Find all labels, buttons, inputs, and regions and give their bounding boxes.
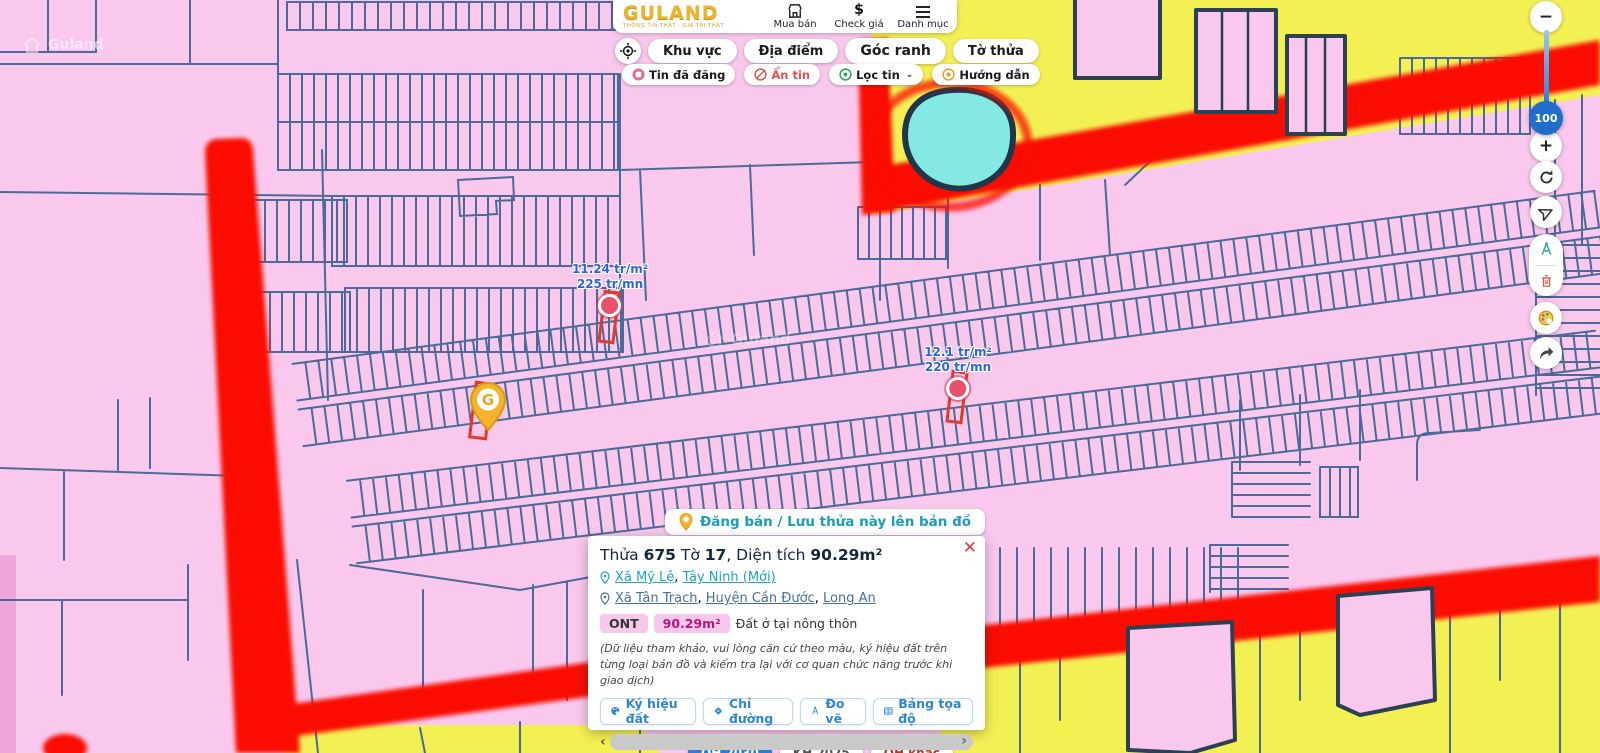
header-bar: GULAND THÔNG TIN THẬT - GIÁ TRỊ THẬT Mua… [613, 0, 957, 33]
menu-label: Danh mục [897, 19, 948, 30]
parcel-info-popup: ✕ Thửa 675 Tờ 17, Diện tích 90.29m² Xã M… [588, 536, 985, 730]
legend-palette-button[interactable] [1530, 302, 1562, 334]
price-per-m2: 11.24 tr/m² [572, 262, 648, 277]
location-line-old: Xã Tân Trạch, Huyện Cần Đước, Long An [600, 591, 973, 606]
svg-text:G: G [482, 391, 494, 409]
save-parcel-button[interactable]: Đăng bán / Lưu thửa này lên bản đồ [665, 509, 985, 535]
menu-label: Check giá [834, 19, 883, 30]
price-per-m2: 12.1 tr/m² [924, 345, 992, 360]
trash-icon[interactable] [1539, 273, 1554, 289]
tab-khu-vuc[interactable]: Khu vực [648, 39, 737, 63]
popup-action-row: Ký hiệu đất Chỉ đường Đo vẽ Bảng tọa độ [600, 698, 973, 725]
filter-target-icon [839, 68, 852, 81]
land-code-badge: ONT [600, 614, 648, 633]
tab-dia-diem[interactable]: Địa điểm [744, 39, 839, 63]
map-mode-tabs: Khu vực Địa điểm Góc ranh Tờ thửa [615, 38, 1039, 64]
compass-icon [810, 704, 821, 718]
zoom-out-button[interactable]: − [1530, 1, 1562, 33]
logo-title: GULAND [623, 4, 724, 23]
close-icon[interactable]: ✕ [963, 540, 977, 557]
filter-loc-tin[interactable]: Lọc tin ⌄ [829, 64, 923, 85]
zoom-level-badge: 100 [1529, 101, 1563, 135]
gold-pin-icon [679, 513, 693, 531]
directions-button[interactable]: Chỉ đường [703, 698, 793, 725]
land-symbol-button[interactable]: Ký hiệu đất [600, 698, 696, 725]
filter-tin-da-dang[interactable]: Tin đã đăng [622, 64, 735, 85]
my-location-button[interactable] [1530, 196, 1562, 228]
share-arrow-icon [1538, 345, 1555, 362]
directions-icon [713, 704, 724, 718]
link-district-old[interactable]: Huyện Cần Đước [706, 591, 815, 606]
hide-news-icon [754, 68, 767, 81]
price-marker[interactable]: 11.24 tr/m² 225 tr/mn [572, 262, 648, 317]
storefront-icon [787, 3, 803, 18]
share-button[interactable] [1530, 337, 1562, 369]
menu-icon [915, 3, 931, 18]
link-province-old[interactable]: Long An [823, 591, 876, 606]
scroll-left-icon[interactable]: ‹ [600, 735, 606, 749]
location-line-new: Xã Mỹ Lệ, Tây Ninh (Mới) [600, 570, 973, 585]
map-pin-outline-icon [600, 571, 610, 584]
divider [1535, 265, 1557, 266]
navigation-arrow-icon [1538, 204, 1555, 221]
coordinates-table-button[interactable]: Bảng tọa độ [873, 698, 973, 725]
locate-button[interactable] [615, 38, 641, 64]
area-badge: 90.29m² [654, 614, 730, 633]
parcel-title: Thửa 675 Tờ 17, Diện tích 90.29m² [600, 546, 973, 564]
land-type-label: Đất ở tại nông thôn [736, 616, 858, 631]
guland-logo[interactable]: GULAND THÔNG TIN THẬT - GIÁ TRỊ THẬT [623, 4, 724, 30]
link-province-new[interactable]: Tây Ninh (Mới) [683, 570, 776, 585]
marker-dot[interactable] [599, 294, 622, 317]
marker-dot[interactable] [947, 377, 970, 400]
filter-huong-dan[interactable]: Hướng dẫn [932, 64, 1039, 85]
crosshair-icon [620, 43, 636, 59]
dollar-icon: $ [854, 3, 864, 18]
measure-compass-icon[interactable] [1538, 241, 1555, 258]
draw-tools-group [1529, 234, 1563, 296]
chevron-down-icon: ⌄ [906, 70, 914, 80]
logo-tagline: THÔNG TIN THẬT - GIÁ TRỊ THẬT [623, 24, 724, 30]
disclaimer-text: (Dữ liệu tham khảo, vui lòng căn cứ theo… [600, 641, 973, 689]
price-total: 220 tr/mn [924, 360, 992, 375]
selected-parcel-pin[interactable]: G [469, 382, 507, 436]
price-total: 225 tr/mn [572, 277, 648, 292]
app-window: Guland Guland 11.24 tr/m² 225 tr/mn 12.1… [0, 0, 1600, 753]
menu-item-danh-muc[interactable]: Danh mục [897, 3, 949, 30]
scroll-right-icon[interactable]: › [961, 734, 967, 748]
menu-label: Mua bán [773, 19, 816, 30]
scrollbar-track[interactable]: › [610, 734, 973, 750]
palette-icon [1537, 309, 1555, 327]
price-marker[interactable]: 12.1 tr/m² 220 tr/mn [924, 345, 992, 400]
menu-item-check-gia[interactable]: $ Check giá [833, 3, 885, 30]
tab-to-thua[interactable]: Tờ thửa [953, 39, 1039, 63]
menu-item-mua-ban[interactable]: Mua bán [769, 3, 821, 30]
filter-an-tin[interactable]: Ẩn tin [744, 64, 820, 85]
link-commune-new[interactable]: Xã Mỹ Lệ [615, 570, 674, 585]
guide-icon [942, 68, 955, 81]
map-pin-outline-icon [600, 592, 610, 605]
refresh-button[interactable] [1530, 161, 1562, 193]
tab-goc-ranh[interactable]: Góc ranh [845, 38, 946, 64]
posted-news-icon [632, 68, 645, 81]
measure-button[interactable]: Đo vẽ [800, 698, 866, 725]
zoom-slider[interactable] [1544, 30, 1549, 106]
link-commune-old[interactable]: Xã Tân Trạch [615, 591, 698, 606]
filter-row: Tin đã đăng Ẩn tin Lọc tin ⌄ Hướng dẫn [622, 64, 1040, 85]
table-icon [883, 704, 894, 718]
refresh-icon [1538, 169, 1555, 186]
popup-scrollbar[interactable]: ‹ › [600, 733, 973, 751]
palette-icon [610, 704, 621, 718]
map-pin-icon: G [469, 382, 507, 432]
